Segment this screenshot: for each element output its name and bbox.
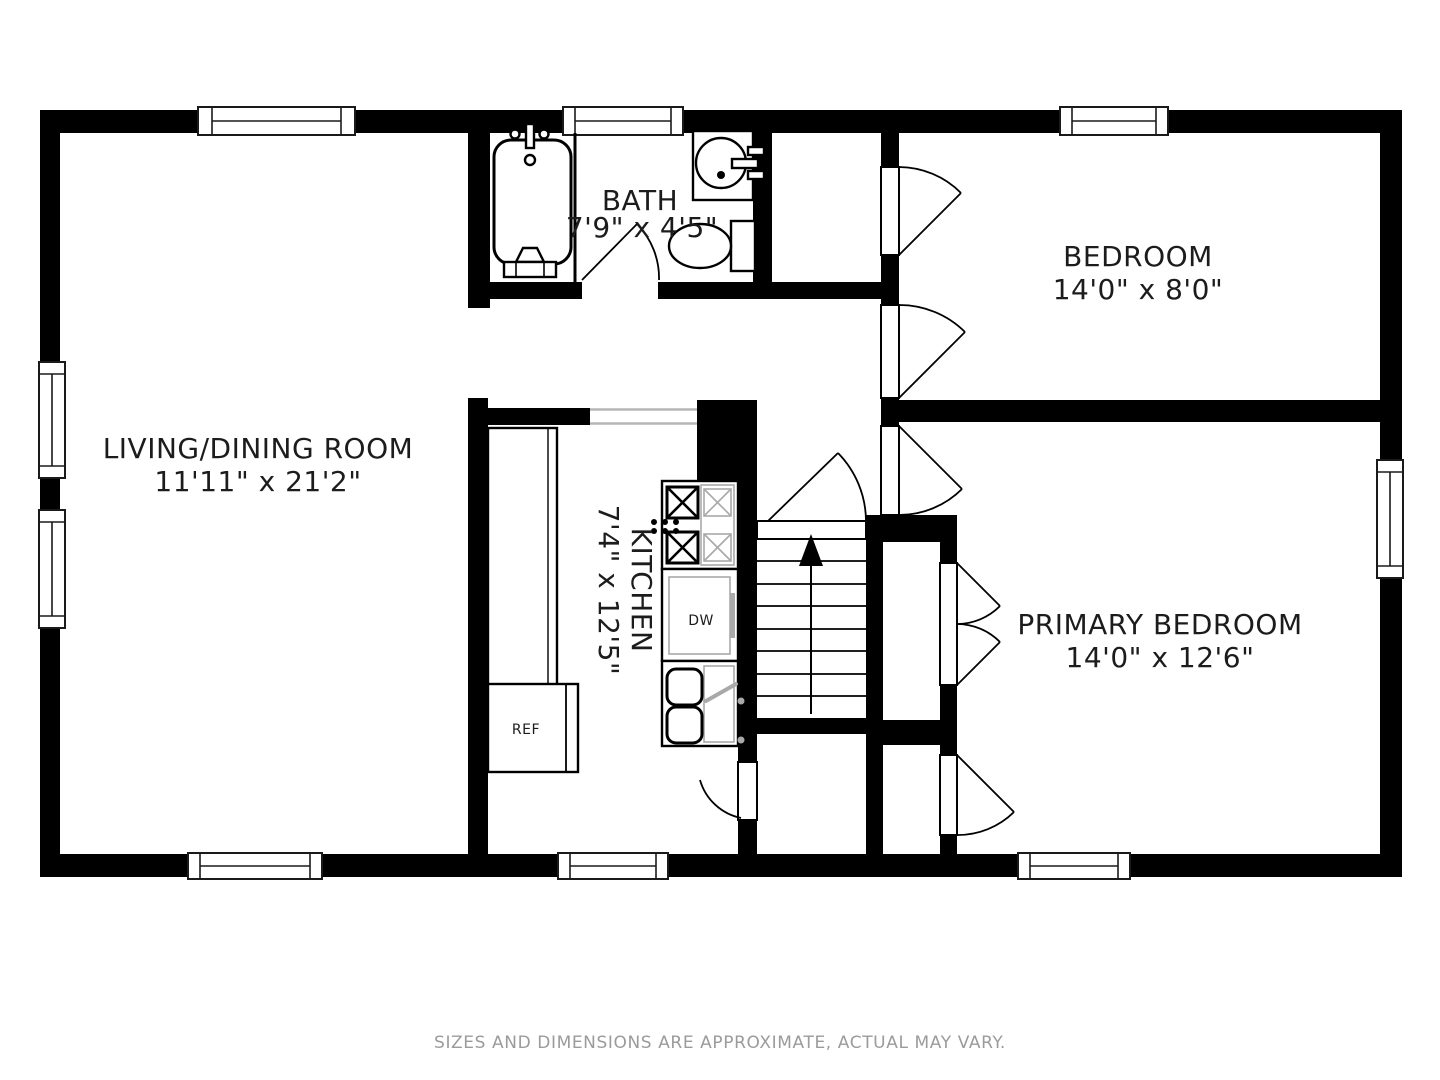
window-primary-right — [1377, 460, 1403, 578]
bedroom-label: BEDROOM 14'0" x 8'0" — [1053, 240, 1224, 306]
living-room-dims: 11'11" x 21'2" — [154, 465, 361, 498]
living-room-label: LIVING/DINING ROOM 11'11" x 21'2" — [103, 432, 414, 498]
primary-entry-door — [881, 426, 962, 515]
wall-stairs-left-upper — [738, 480, 757, 762]
wall-closet2-right-a — [940, 745, 957, 755]
wall-closet2-right-b — [940, 835, 957, 854]
bedroom-dims: 14'0" x 8'0" — [1053, 273, 1224, 306]
understairs-closet-door — [700, 762, 757, 820]
wall-bedroom-left-3 — [881, 398, 899, 426]
wall-closet-top — [866, 515, 957, 542]
dishwasher-label: DW — [688, 613, 714, 629]
kitchen-cased-opening — [590, 410, 697, 424]
disclaimer-text: SIZES AND DIMENSIONS ARE APPROXIMATE, AC… — [434, 1033, 1006, 1053]
kitchen-counter — [488, 428, 557, 685]
bathtub-icon — [494, 124, 571, 277]
kitchen-sink-icon — [662, 661, 745, 746]
primary-closet2-door — [940, 755, 1014, 835]
wall-closet1-right-b — [940, 685, 957, 720]
window-living-left-2 — [39, 510, 65, 628]
window-bedroom-top — [1060, 107, 1168, 135]
wall-bath-bottom-left — [468, 282, 582, 299]
dishwasher-icon: DW — [662, 569, 738, 661]
wall-bedroom-left-2 — [881, 255, 899, 305]
living-room-name: LIVING/DINING ROOM — [103, 432, 414, 465]
floorplan-page: REF DW — [0, 0, 1440, 1080]
stairs-up-arrow-icon — [799, 534, 823, 714]
window-living-bottom — [188, 853, 322, 879]
wall-closet1-right-a — [940, 542, 957, 563]
window-living-top — [198, 107, 355, 135]
kitchen-dims: 7'4" x 12'5" — [592, 505, 625, 676]
kitchen-label: KITCHEN 7'4" x 12'5" — [592, 505, 658, 676]
window-primary-bottom — [1018, 853, 1130, 879]
wall-bath-bottom-right — [658, 282, 881, 299]
wall-bedroom-left-1 — [881, 133, 899, 167]
window-bath-top — [563, 107, 683, 135]
wall-stairs-right — [866, 521, 883, 854]
wall-kitchen-block — [697, 400, 757, 480]
wall-left — [40, 110, 60, 877]
wall-kitchen-top — [468, 408, 590, 425]
refrigerator-icon: REF — [488, 684, 578, 772]
wall-stairs-bottom — [757, 718, 866, 734]
refrigerator-label: REF — [512, 722, 540, 738]
primary-bedroom-name: PRIMARY BEDROOM — [1017, 608, 1302, 641]
primary-bedroom-dims: 14'0" x 12'6" — [1066, 641, 1255, 674]
wall-bedroom-divider — [899, 400, 1382, 422]
window-living-left-1 — [39, 362, 65, 478]
bath-sink-icon — [693, 131, 764, 200]
floorplan-drawing: REF DW — [0, 0, 1440, 1080]
primary-closet-double-door — [940, 563, 1000, 685]
bath-dims: 7'9" x 4'5" — [566, 211, 718, 244]
window-kitchen-bottom — [558, 853, 668, 879]
bedroom-name: BEDROOM — [1063, 240, 1213, 273]
stairs — [757, 521, 866, 714]
bedroom-closet-door — [881, 167, 961, 255]
wall-bath-left — [468, 133, 490, 308]
hall-stairs-door — [768, 453, 866, 521]
wall-closet-mid — [866, 720, 957, 745]
bedroom-entry-door — [881, 305, 965, 398]
kitchen-name: KITCHEN — [625, 528, 658, 653]
wall-stairs-left-lower — [738, 820, 757, 854]
stove-icon — [651, 481, 738, 569]
wall-kitchen-left — [468, 398, 488, 854]
primary-bedroom-label: PRIMARY BEDROOM 14'0" x 12'6" — [1017, 608, 1302, 674]
